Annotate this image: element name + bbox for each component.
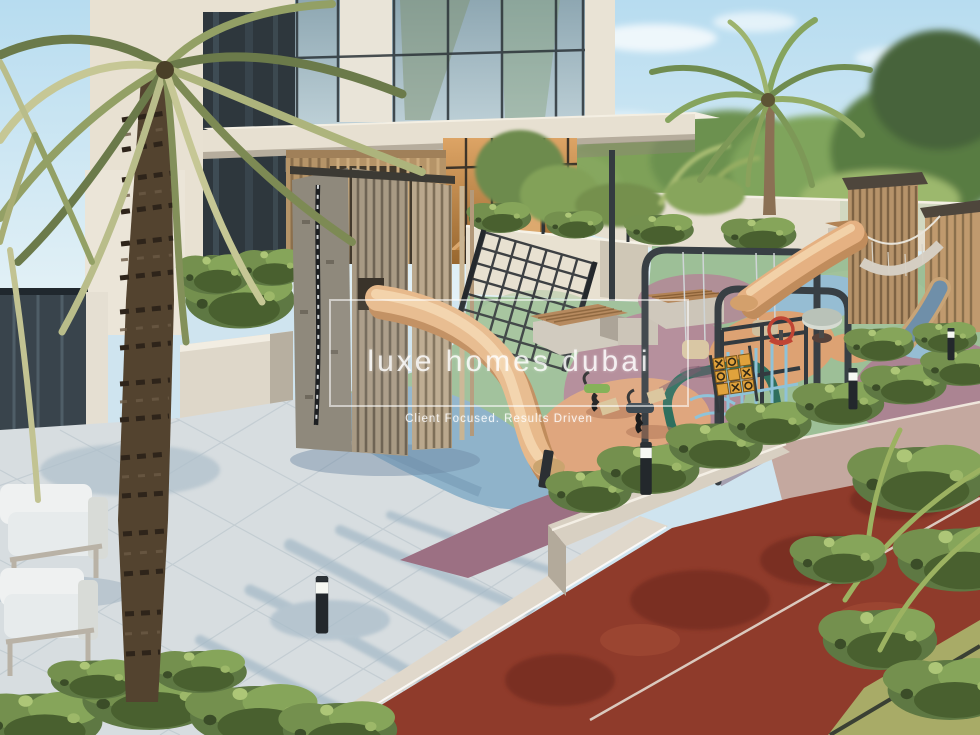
watermark-brand: luxe homes dubai [367,327,650,379]
bollard-light [316,576,329,634]
bollard-light [640,442,652,495]
watermark-tagline: Client Focused. Results Driven [319,413,679,425]
glass-facade [295,0,615,130]
watermark-frame: luxe homes dubai [329,299,689,407]
bollard-light [849,368,858,409]
bollard-light [948,328,955,360]
rendering-image: luxe homes dubai Client Focused. Results… [0,0,980,735]
